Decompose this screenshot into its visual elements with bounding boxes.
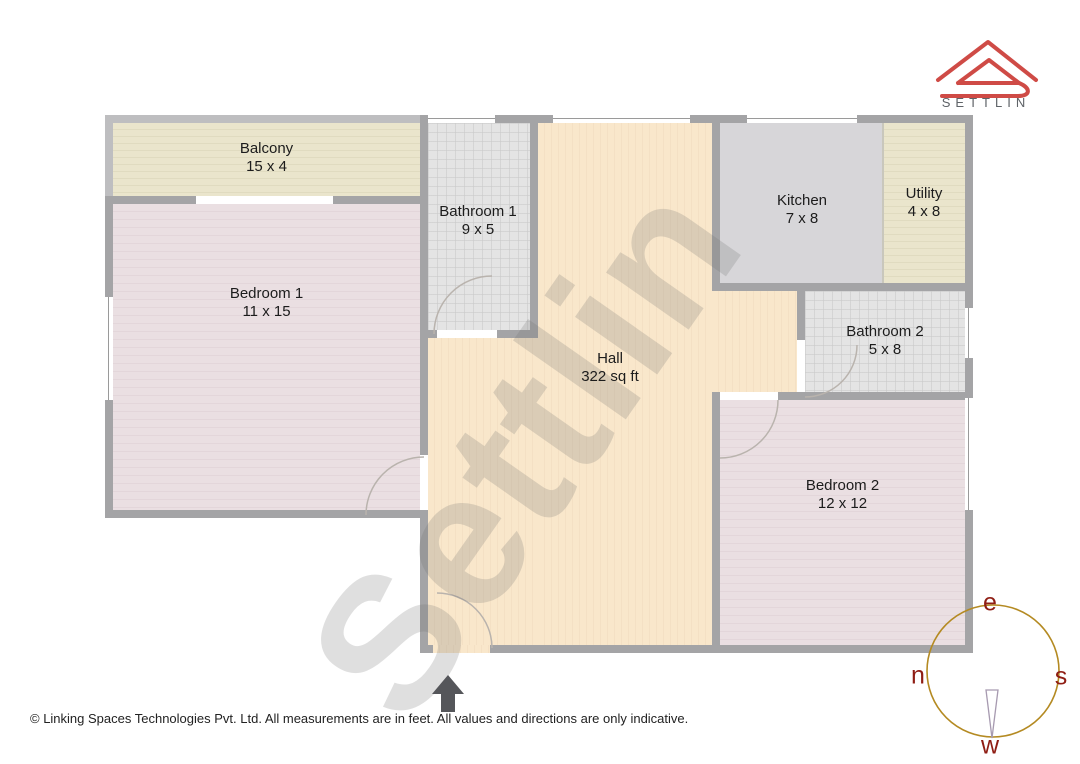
compass-rose-icon [927, 605, 1059, 738]
overlay-graphics [0, 0, 1080, 764]
footer-disclaimer: © Linking Spaces Technologies Pvt. Ltd. … [30, 711, 688, 726]
compass-north-label: n [911, 664, 925, 689]
compass-west-label: w [981, 734, 999, 759]
brand-wordmark: SETTLIN [930, 95, 1042, 110]
compass-east-label: e [983, 591, 997, 616]
floor-plan-page: Settlin Balcony 15 x 4 Bedroom 1 11 x 15… [0, 0, 1080, 764]
compass-south-label: s [1055, 665, 1068, 690]
brand-logo-roof-icon [938, 42, 1036, 96]
entrance-arrow-icon [432, 675, 464, 712]
